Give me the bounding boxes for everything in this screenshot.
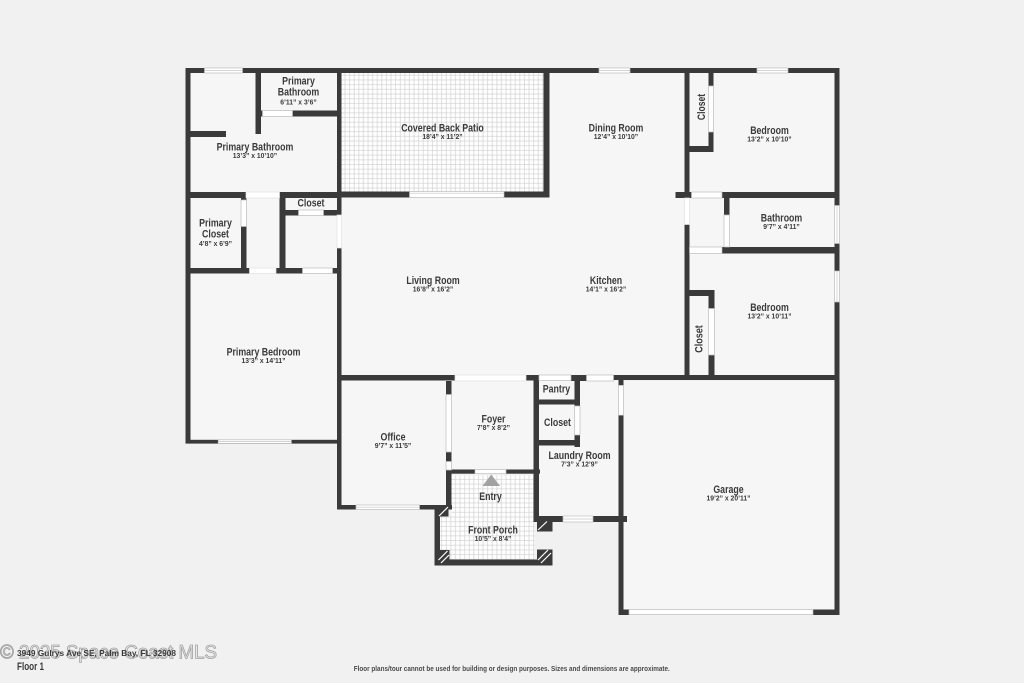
svg-text:Entry: Entry — [479, 491, 502, 503]
svg-text:Bathroom: Bathroom — [278, 87, 320, 99]
svg-text:13’2” x 10’11”: 13’2” x 10’11” — [748, 312, 792, 321]
svg-text:3949 Gulrys Ave SE, Palm Bay,: 3949 Gulrys Ave SE, Palm Bay, FL 32908 — [17, 648, 176, 658]
svg-text:9’7” x 4’11”: 9’7” x 4’11” — [763, 222, 800, 231]
svg-text:7’3” x 12’9”: 7’3” x 12’9” — [561, 459, 598, 468]
svg-text:Floor plans/tour cannot be use: Floor plans/tour cannot be used for buil… — [354, 664, 670, 673]
svg-text:Floor 1: Floor 1 — [17, 661, 44, 673]
svg-text:6’11” x 3’6”: 6’11” x 3’6” — [280, 98, 317, 107]
svg-text:13’3” x 14’11”: 13’3” x 14’11” — [242, 356, 286, 365]
svg-text:19’2” x 20’11”: 19’2” x 20’11” — [707, 493, 751, 502]
svg-text:Pantry: Pantry — [543, 384, 571, 396]
svg-text:18’4” x 11’2”: 18’4” x 11’2” — [422, 132, 462, 141]
svg-text:Closet: Closet — [696, 94, 708, 121]
svg-text:9’7” x 11’5”: 9’7” x 11’5” — [375, 441, 412, 450]
svg-text:14’1” x 16’2”: 14’1” x 16’2” — [586, 285, 627, 294]
svg-text:13’2” x 10’10”: 13’2” x 10’10” — [747, 134, 792, 143]
svg-text:7’8” x 8’2”: 7’8” x 8’2” — [477, 423, 510, 432]
svg-text:10’5” x 8’4”: 10’5” x 8’4” — [475, 534, 512, 543]
svg-text:12’4” x 10’10”: 12’4” x 10’10” — [594, 132, 639, 141]
svg-text:16’8” x 16’2”: 16’8” x 16’2” — [413, 285, 454, 294]
svg-text:13’3” x 10’10”: 13’3” x 10’10” — [233, 151, 278, 160]
svg-text:Closet: Closet — [694, 325, 706, 353]
svg-text:Closet: Closet — [544, 417, 571, 429]
svg-text:Closet: Closet — [298, 198, 325, 210]
svg-text:4’8” x 6’9”: 4’8” x 6’9” — [199, 239, 232, 248]
